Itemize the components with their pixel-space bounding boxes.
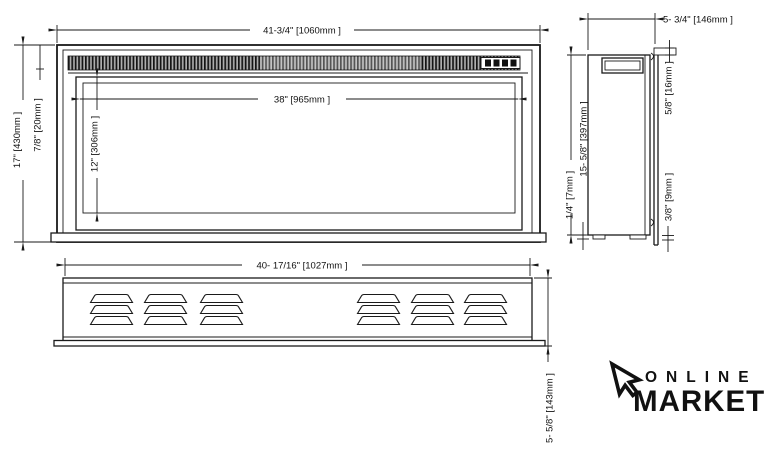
side-depth-dimension: 5- 3/4" [146mm ] xyxy=(663,15,733,26)
control-button xyxy=(502,60,508,67)
louver-slot xyxy=(412,295,454,303)
louver-slot xyxy=(91,306,133,314)
bottom-flange xyxy=(54,341,545,347)
control-button xyxy=(485,60,491,67)
louver-slot xyxy=(145,306,187,314)
bottom-depth-dimension: 5- 5/8" [143mm ] xyxy=(545,373,556,443)
glass-width-dimension: 38" [965mm ] xyxy=(274,95,330,106)
glass-height-dimension: 12" [306mm ] xyxy=(90,116,101,172)
side-bottom-gap-dimension: 1/4" [7mm ] xyxy=(565,171,576,219)
louver-slot xyxy=(358,317,400,325)
fireplace-dimension-drawing: 41-3/4" [1060mm ] 17" [430mm ] 7/8" [20m… xyxy=(0,0,771,463)
top-trim-lip xyxy=(654,48,676,55)
logo-market-text: MARKET xyxy=(633,385,765,418)
louver-slot xyxy=(91,317,133,325)
louver-slot xyxy=(201,317,243,325)
bottom-trim-flange xyxy=(51,233,546,242)
online-market-logo: ONLINE MARKET xyxy=(612,359,765,418)
side-height-dimension: 15- 5/8" [397mm ] xyxy=(579,101,590,176)
front-grille-dimension: 7/8" [20mm ] xyxy=(33,98,44,152)
clip-hook xyxy=(651,53,654,60)
louver-slot xyxy=(358,295,400,303)
control-button xyxy=(511,60,517,67)
louver-slot xyxy=(91,295,133,303)
bottom-view: 40- 17/16" [1027mm ] xyxy=(54,258,556,443)
louver-slot xyxy=(201,295,243,303)
control-button xyxy=(494,60,500,67)
bottom-body-outline xyxy=(63,278,532,344)
front-width-dimension: 41-3/4" [1060mm ] xyxy=(263,26,341,37)
louver-slot xyxy=(201,306,243,314)
louver-slot xyxy=(145,317,187,325)
bottom-width-dimension: 40- 17/16" [1027mm ] xyxy=(256,261,347,272)
front-body-outline xyxy=(57,45,540,242)
side-view: 5- 3/4" [146mm ] 15- 5/8" [397mm ] 5/8" … xyxy=(565,13,733,252)
front-view: 41-3/4" [1060mm ] 17" [430mm ] 7/8" [20m… xyxy=(12,25,546,242)
side-body-outline xyxy=(588,55,650,235)
side-top-lip-dimension: 5/8" [16mm ] xyxy=(664,61,675,115)
logo-online-text: ONLINE xyxy=(645,369,758,386)
louver-slot xyxy=(145,295,187,303)
foot xyxy=(630,235,646,239)
louver-slot xyxy=(358,306,400,314)
louver-slot xyxy=(465,306,507,314)
louver-slot xyxy=(465,317,507,325)
louver-slot xyxy=(412,317,454,325)
clip-hook xyxy=(651,219,654,226)
side-bottom-lip-dimension: 3/8" [9mm ] xyxy=(664,173,675,221)
louver-slot xyxy=(412,306,454,314)
technical-drawing-canvas: 41-3/4" [1060mm ] 17" [430mm ] 7/8" [20m… xyxy=(0,0,771,463)
foot xyxy=(593,235,605,239)
front-height-dimension: 17" [430mm ] xyxy=(12,112,23,168)
grille-segment xyxy=(260,57,420,70)
louver-slot xyxy=(465,295,507,303)
